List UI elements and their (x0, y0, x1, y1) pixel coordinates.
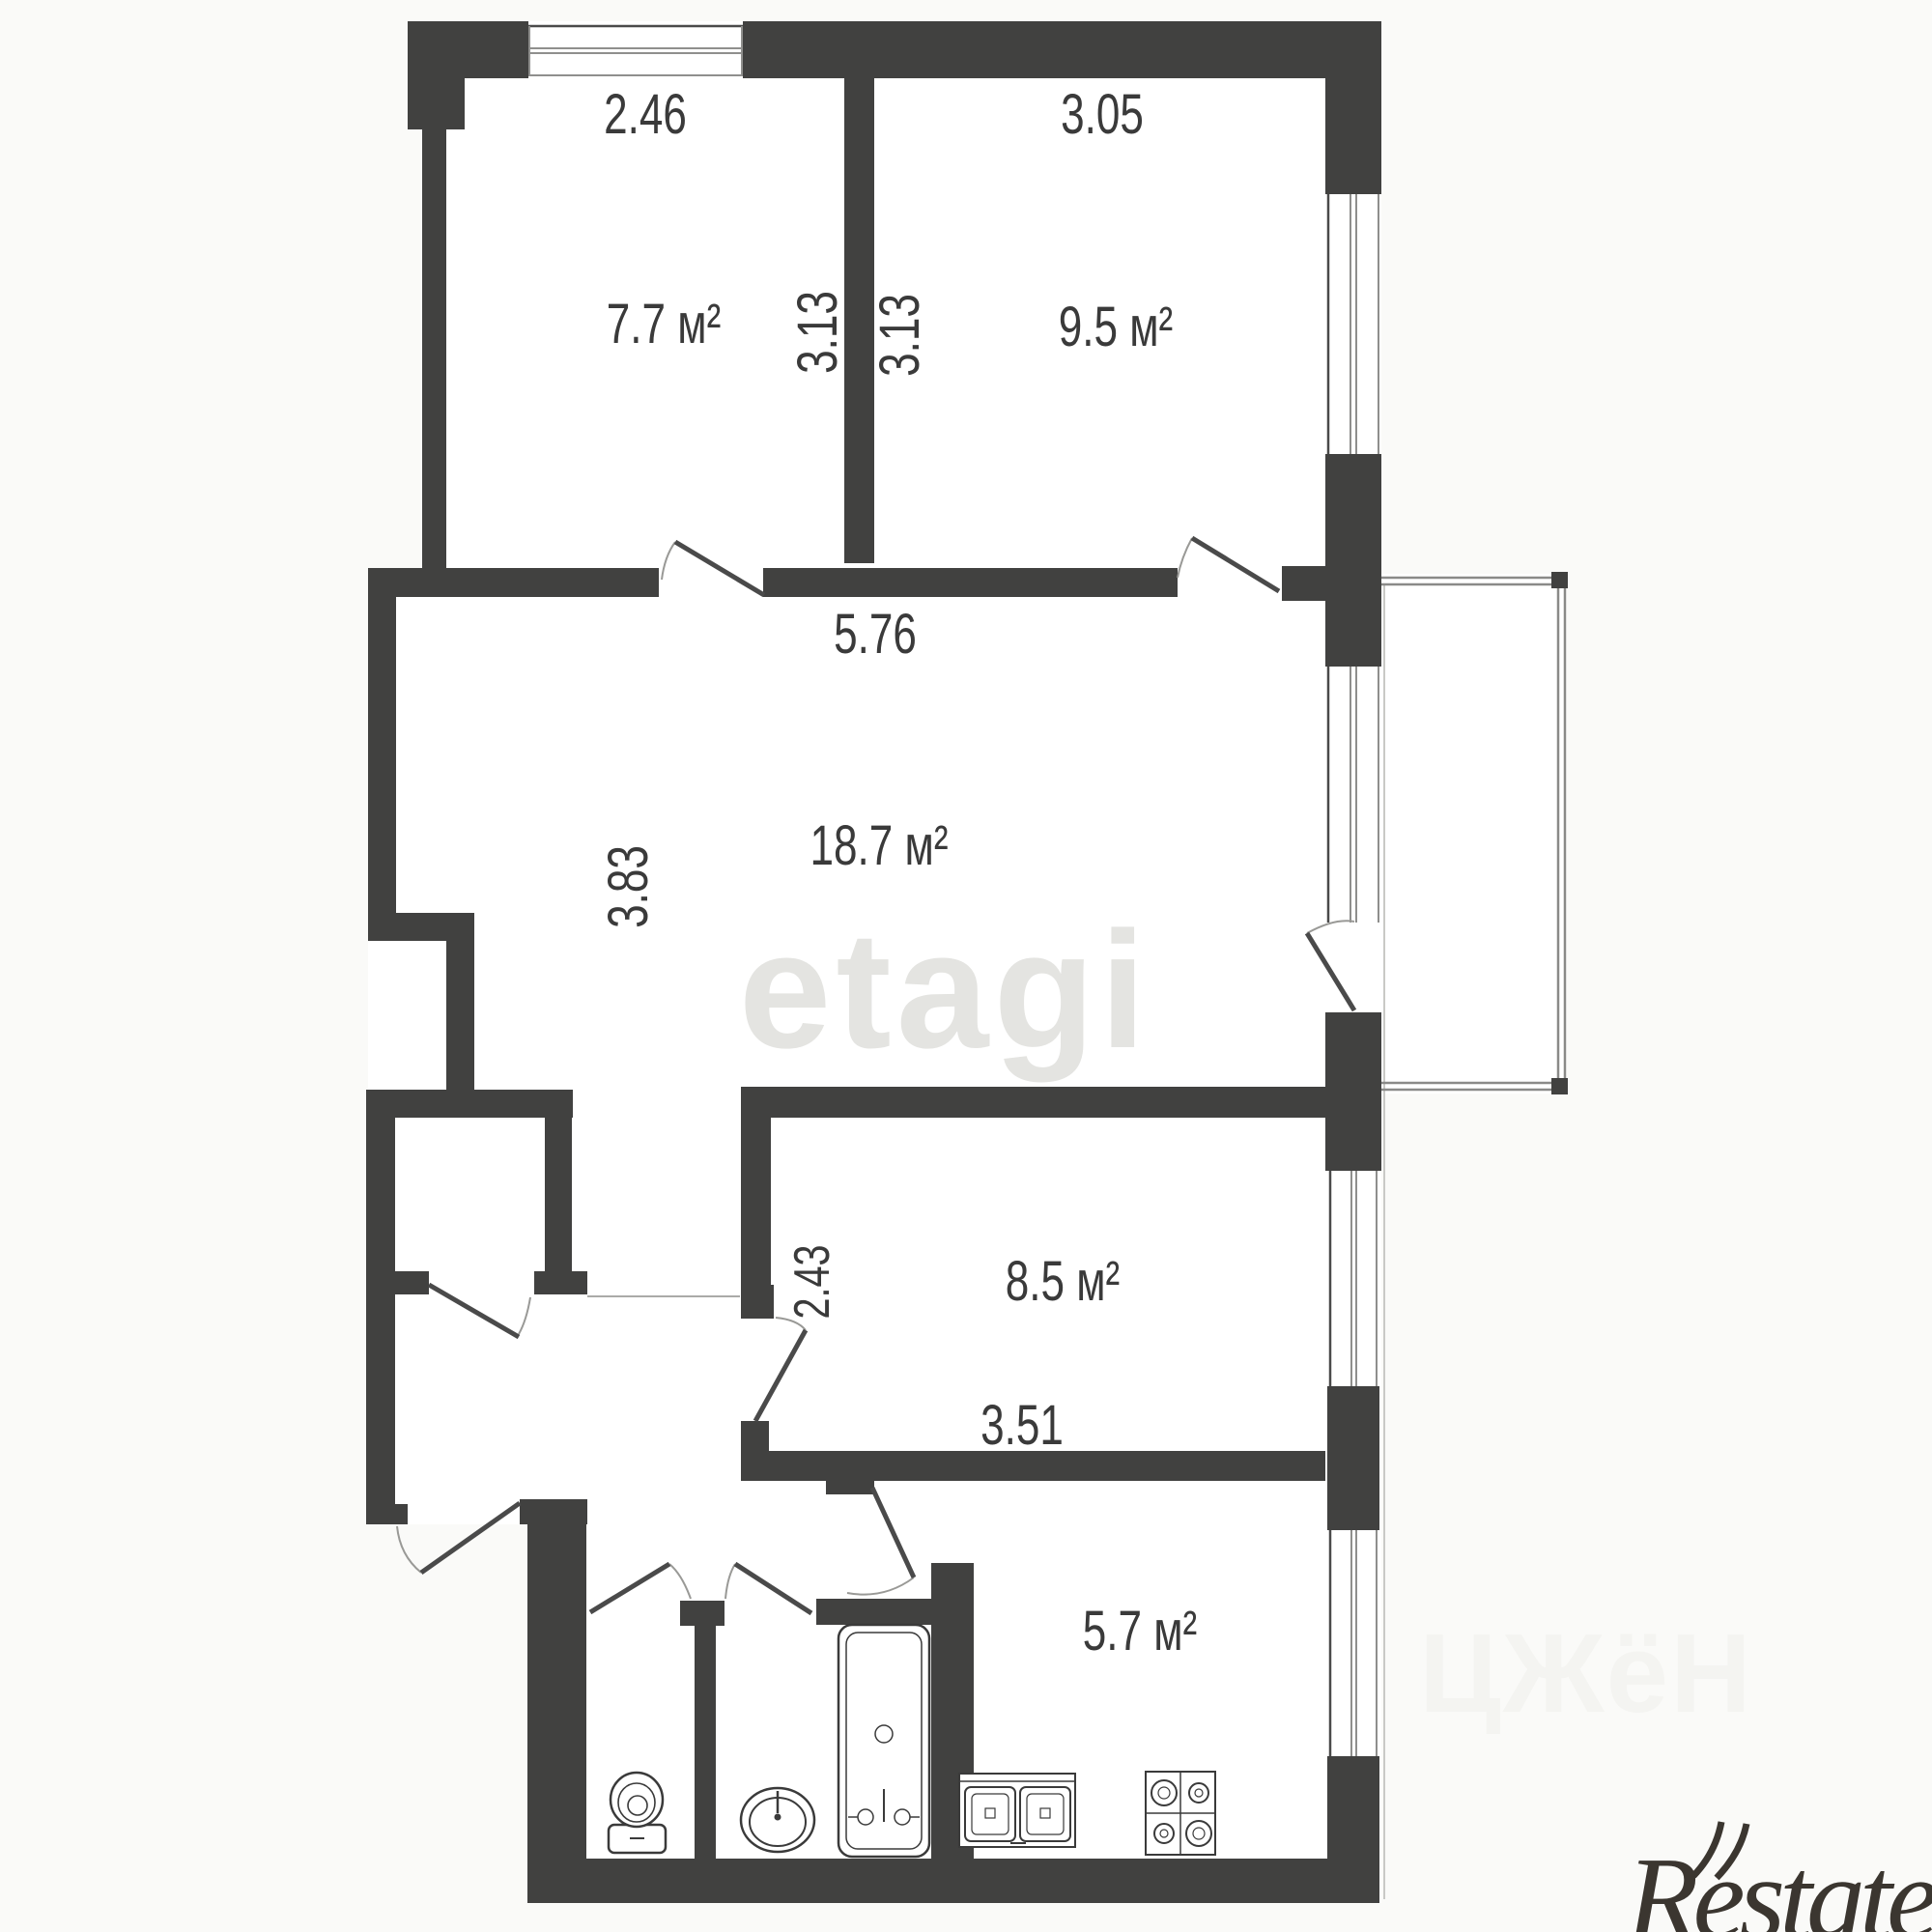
svg-text:9.5 м²: 9.5 м² (1059, 295, 1173, 357)
svg-text:3.51: 3.51 (980, 1393, 1064, 1456)
svg-text:5.76: 5.76 (834, 602, 917, 665)
svg-text:3.83: 3.83 (596, 845, 659, 928)
svg-text:2.46: 2.46 (604, 82, 687, 145)
svg-text:18.7 м²: 18.7 м² (810, 813, 949, 876)
svg-text:8.5 м²: 8.5 м² (1006, 1249, 1120, 1312)
svg-text:2.43: 2.43 (783, 1245, 840, 1320)
svg-text:3.13: 3.13 (785, 291, 848, 374)
svg-text:7.7 м²: 7.7 м² (607, 292, 721, 355)
svg-text:3.05: 3.05 (1061, 82, 1144, 145)
svg-text:Restate: Restate (1626, 1833, 1932, 1932)
svg-text:5.7 м²: 5.7 м² (1083, 1599, 1197, 1662)
svg-text:3.13: 3.13 (867, 294, 930, 377)
svg-text:etagi: etagi (739, 897, 1151, 1083)
svg-text:ЦЖёН: ЦЖёН (1419, 1610, 1753, 1736)
